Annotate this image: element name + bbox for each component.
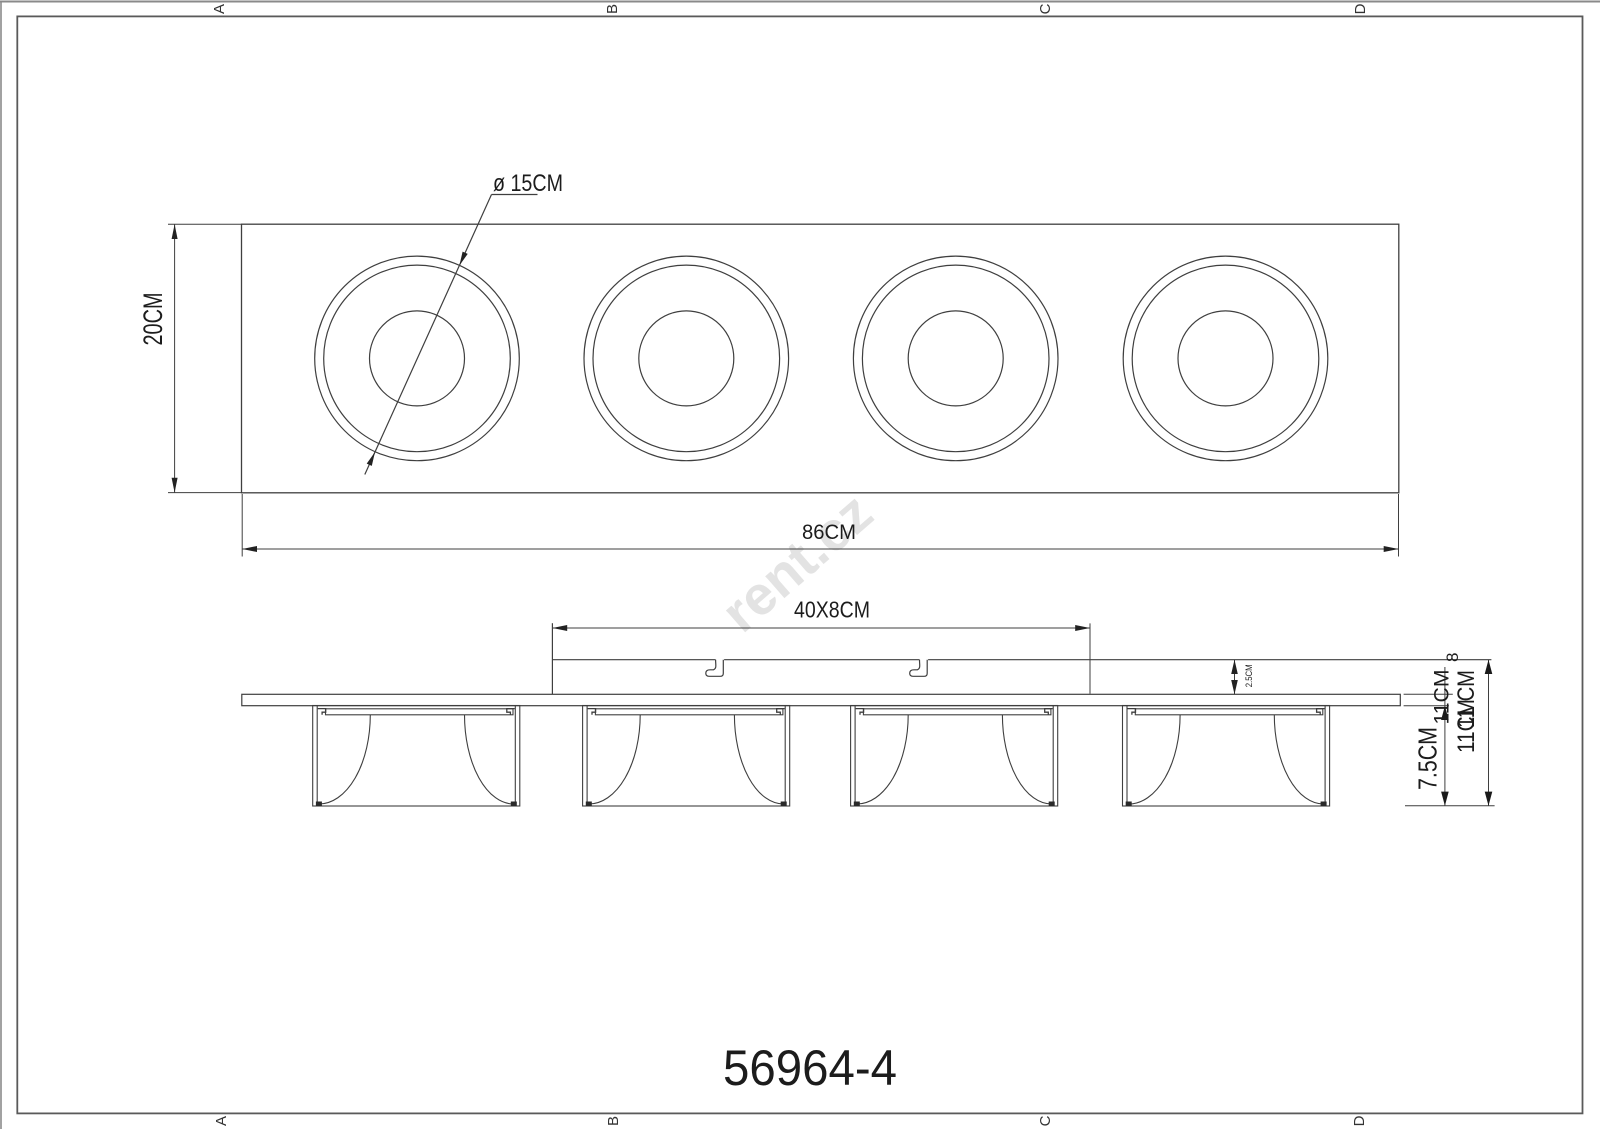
- svg-text:B: B: [605, 1116, 622, 1126]
- svg-text:86CM: 86CM: [802, 521, 856, 544]
- svg-text:11CM: 11CM: [1430, 670, 1453, 725]
- svg-text:C: C: [1037, 1115, 1054, 1126]
- svg-text:11CM: 11CM: [1453, 699, 1480, 753]
- svg-text:A: A: [211, 4, 228, 14]
- svg-text:8: 8: [1443, 653, 1462, 662]
- svg-text:2.5CM: 2.5CM: [1244, 664, 1254, 687]
- svg-text:D: D: [1352, 3, 1369, 14]
- svg-text:ø 15CM: ø 15CM: [493, 170, 563, 197]
- svg-text:B: B: [604, 4, 621, 14]
- svg-text:C: C: [1037, 3, 1054, 14]
- svg-text:20CM: 20CM: [138, 293, 168, 346]
- svg-text:40X8CM: 40X8CM: [794, 597, 870, 623]
- svg-text:56964-4: 56964-4: [723, 1040, 897, 1096]
- svg-text:D: D: [1351, 1115, 1368, 1126]
- svg-text:7.5CM: 7.5CM: [1413, 727, 1443, 790]
- svg-text:A: A: [213, 1116, 230, 1126]
